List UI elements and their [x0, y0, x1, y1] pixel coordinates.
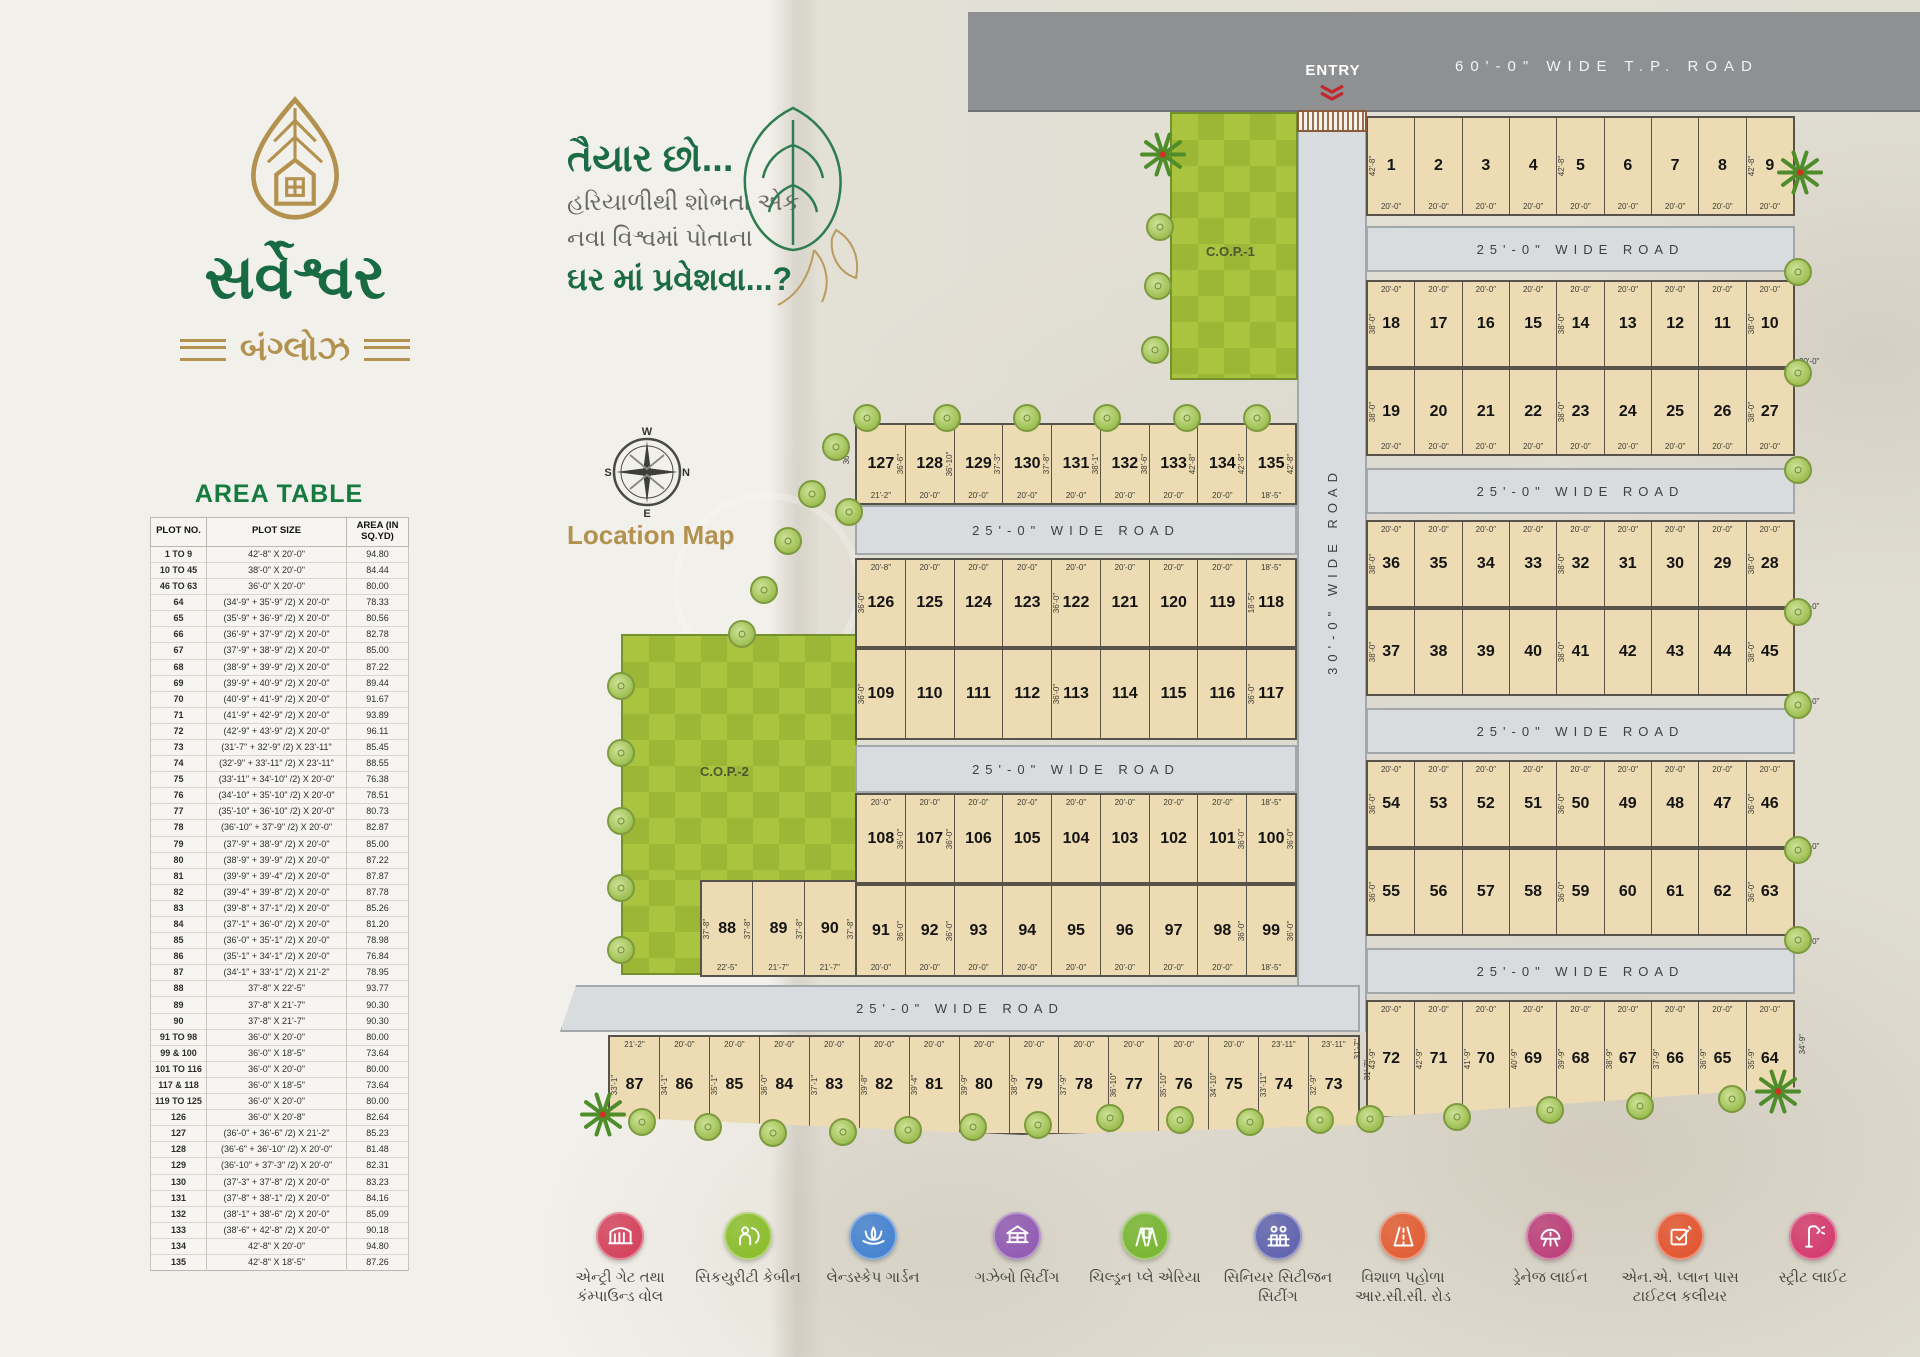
plot-no-cell: 132 [151, 1206, 207, 1222]
plot-90: 9021'-7"37'-8" [805, 882, 855, 975]
dimension-label: 20'-0" [1163, 798, 1183, 807]
tree-icon [1536, 1096, 1564, 1124]
plot-size-cell: 37'-8" X 21'-7" [207, 1013, 347, 1029]
plot-49: 4920'-0" [1605, 762, 1652, 846]
dimension-label: 20'-0" [1017, 798, 1037, 807]
plot-135: 13518'-5"42'-8" [1247, 425, 1295, 503]
plot-number: 6 [1623, 157, 1632, 175]
plot-number: 131 [1063, 455, 1090, 473]
tree-icon [1718, 1085, 1746, 1113]
tree-icon [1356, 1105, 1384, 1133]
plot-number: 22 [1524, 403, 1542, 421]
plot-size-cell: (37'-9" + 38'-9" /2) X 20'-0" [207, 836, 347, 852]
plot-number: 17 [1430, 315, 1448, 333]
legend-item: લેન્ડસ્કેપ ગાર્ડન [798, 1212, 948, 1288]
compass-n: N [682, 467, 690, 479]
table-row: 12636'-0" X 20'-8"82.64 [151, 1110, 409, 1126]
plot-block-row127: 12721'-2"36'-6"12820'-0"36'-10"12920'-0"… [855, 423, 1297, 505]
dimension-label: 34'-9" [1798, 1034, 1807, 1054]
dimension-label: 20'-0" [1570, 202, 1590, 211]
plot-no-cell: 101 TO 116 [151, 1061, 207, 1077]
plot-number: 29 [1714, 555, 1732, 573]
plot-15: 1520'-0" [1510, 282, 1557, 366]
tree-icon [1093, 404, 1121, 432]
tree-icon [829, 1118, 857, 1146]
plot-size-cell: 36'-0" X 20'-8" [207, 1110, 347, 1126]
plot-number: 50 [1572, 795, 1590, 813]
plot-number: 40 [1524, 643, 1542, 661]
plot-number: 23 [1572, 403, 1590, 421]
plot-no-cell: 66 [151, 627, 207, 643]
dimension-label: 20'-0" [1618, 285, 1638, 294]
dimension-label: 36'-10" [1109, 1073, 1118, 1098]
plot-number: 28 [1761, 555, 1779, 573]
plot-97: 9720'-0" [1150, 886, 1199, 975]
plot-20: 2020'-0" [1415, 370, 1462, 454]
cop2-label: C.O.P.-2 [700, 764, 749, 779]
dimension-label: 20'-0" [924, 1040, 944, 1049]
plot-number: 30 [1666, 555, 1684, 573]
dimension-label: 20'-0" [1428, 442, 1448, 451]
plot-size-cell: 36'-0" X 20'-0" [207, 579, 347, 595]
dimension-label: 36'-6" [896, 454, 905, 474]
tree-icon [1306, 1106, 1334, 1134]
plot-number: 123 [1014, 594, 1041, 612]
plot-no-cell: 75 [151, 772, 207, 788]
plot-18: 1820'-0"38'-0" [1368, 282, 1415, 366]
dimension-label: 20'-0" [968, 798, 988, 807]
area-cell: 73.64 [347, 1077, 409, 1093]
tree-icon [774, 527, 802, 555]
plot-size-cell: 42'-8" X 20'-0" [207, 1238, 347, 1254]
dimension-label: 20'-0" [724, 1040, 744, 1049]
road-25-wide: 25'-0" WIDE ROAD [855, 745, 1297, 793]
plot-size-cell: (35'-10" + 36'-10" /2) X 20'-0" [207, 804, 347, 820]
plot-number: 24 [1619, 403, 1637, 421]
plot-21: 2120'-0" [1463, 370, 1510, 454]
dimension-label: 20'-0" [1017, 563, 1037, 572]
security-cabin-icon [724, 1212, 772, 1260]
area-cell: 85.00 [347, 836, 409, 852]
plot-37: 3738'-0" [1368, 610, 1415, 694]
dimension-label: 20'-0" [1212, 798, 1232, 807]
plot-number: 75 [1225, 1076, 1243, 1094]
dimension-label: 20'-0" [1570, 765, 1590, 774]
plot-number: 69 [1524, 1050, 1542, 1068]
area-cell: 78.95 [347, 965, 409, 981]
bench-people-icon [1254, 1212, 1302, 1260]
plot-no-cell: 89 [151, 997, 207, 1013]
plot-no-cell: 117 & 118 [151, 1077, 207, 1093]
plot-107: 10720'-0"36'-0" [906, 795, 955, 882]
plot-number: 62 [1714, 883, 1732, 901]
location-map-label: Location Map [567, 520, 735, 551]
area-cell: 76.38 [347, 772, 409, 788]
plot-number: 76 [1175, 1076, 1193, 1094]
plot-number: 4 [1529, 157, 1538, 175]
area-cell: 89.44 [347, 675, 409, 691]
dimension-label: 20'-0" [1523, 202, 1543, 211]
dimension-label: 20'-0" [1428, 285, 1448, 294]
road-25-wide: 25'-0" WIDE ROAD [1366, 948, 1795, 994]
plot-44: 44 [1699, 610, 1746, 694]
plot-number: 38 [1430, 643, 1448, 661]
plot-no-cell: 130 [151, 1174, 207, 1190]
plot-no-cell: 131 [151, 1190, 207, 1206]
plot-number: 13 [1619, 315, 1637, 333]
plot-26: 2620'-0" [1699, 370, 1746, 454]
plot-72: 7220'-0"43'-9" [1368, 1002, 1415, 1116]
plot-no-cell: 68 [151, 659, 207, 675]
plot-number: 74 [1275, 1076, 1293, 1094]
plot-number: 115 [1161, 685, 1187, 703]
dimension-label: 38'-0" [1747, 402, 1756, 422]
dimension-label: 36'-0" [1237, 920, 1246, 940]
dimension-label: 20'-0" [874, 1040, 894, 1049]
plot-number: 60 [1619, 883, 1637, 901]
plot-number: 18 [1382, 315, 1400, 333]
table-row: 1 TO 942'-8" X 20'-0"94.80 [151, 546, 409, 562]
plot-66: 6620'-0"37'-9" [1652, 1002, 1699, 1116]
tree-icon [1784, 598, 1812, 626]
plot-size-cell: (33'-11" + 34'-10" /2) X 20'-0" [207, 772, 347, 788]
dimension-label: 20'-0" [968, 563, 988, 572]
plot-126: 12620'-8"36'-0" [857, 560, 906, 646]
table-row: 78(36'-10" + 37'-9" /2) X 20'-0"82.87 [151, 820, 409, 836]
plot-36: 3620'-0"38'-0" [1368, 522, 1415, 606]
plot-14: 1420'-0"38'-0" [1557, 282, 1604, 366]
plot-number: 121 [1111, 594, 1138, 612]
plot-number: 93 [970, 922, 988, 940]
plot-number: 33 [1524, 555, 1542, 573]
area-table-title: AREA TABLE [150, 480, 408, 509]
plot-number: 3 [1481, 157, 1490, 175]
dimension-label: 20'-0" [1760, 202, 1780, 211]
dimension-label: 38'-1" [1091, 454, 1100, 474]
dimension-label: 38'-0" [1557, 402, 1566, 422]
plot-number: 100 [1258, 830, 1285, 848]
dimension-label: 31'-7" [1363, 1060, 1372, 1080]
plot-number: 32 [1572, 555, 1590, 573]
gazebo-icon [993, 1212, 1041, 1260]
plot-block-rowG: 5536'-0"5657585936'-0"6061626336'-0" [1366, 848, 1795, 936]
table-row: 133(38'-6" + 42'-8" /2) X 20'-0"90.18 [151, 1222, 409, 1238]
plot-120: 12020'-0" [1150, 560, 1199, 646]
dimension-label: 37'-9" [1652, 1049, 1661, 1069]
plot-104: 10420'-0" [1052, 795, 1101, 882]
dimension-label: 36'-10" [945, 452, 954, 477]
plot-39: 39 [1463, 610, 1510, 694]
plot-no-cell: 69 [151, 675, 207, 691]
plot-number: 63 [1761, 883, 1779, 901]
table-row: 83(39'-8" + 37'-1" /2) X 20'-0"85.26 [151, 900, 409, 916]
dimension-label: 20'-0" [1665, 525, 1685, 534]
plot-number: 105 [1014, 830, 1041, 848]
legend-label: એન.એ. પ્લાન પાસ ટાઈટલ કલીયર [1605, 1269, 1755, 1307]
plot-size-cell: (37'-9" + 38'-9" /2) X 20'-0" [207, 643, 347, 659]
dimension-label: 20'-0" [1712, 765, 1732, 774]
dimension-label: 20'-0" [1381, 1005, 1401, 1014]
dimension-label: 37'-8" [846, 918, 855, 938]
plot-74: 7423'-11"33'-11" [1259, 1037, 1309, 1133]
palm-tree-icon [579, 1091, 627, 1144]
plot-25: 2520'-0" [1652, 370, 1699, 454]
plot-43: 43 [1652, 610, 1699, 694]
dimension-label: 20'-0" [1476, 442, 1496, 451]
table-row: 129(36'-10" + 37'-3" /2) X 20'-0"82.31 [151, 1158, 409, 1174]
plot-number: 72 [1382, 1050, 1400, 1068]
tree-icon [853, 404, 881, 432]
dimension-label: 18'-5" [1261, 563, 1281, 572]
plot-no-cell: 77 [151, 804, 207, 820]
plot-size-cell: 36'-0" X 18'-5" [207, 1045, 347, 1061]
plot-63: 6336'-0" [1747, 850, 1793, 934]
plot-61: 61 [1652, 850, 1699, 934]
dimension-label: 20'-0" [1163, 963, 1183, 972]
table-row: 128(36'-6" + 36'-10" /2) X 20'-0"81.48 [151, 1142, 409, 1158]
plot-106: 10620'-0" [955, 795, 1004, 882]
plot-no-cell: 83 [151, 900, 207, 916]
plot-22: 2220'-0" [1510, 370, 1557, 454]
plot-number: 59 [1572, 883, 1590, 901]
area-cell: 80.56 [347, 611, 409, 627]
plot-number: 103 [1111, 830, 1138, 848]
area-cell: 78.33 [347, 595, 409, 611]
plot-size-cell: (38'-9" + 39'-9" /2) X 20'-0" [207, 852, 347, 868]
plot-number: 94 [1018, 922, 1036, 940]
dimension-label: 20'-0" [1760, 285, 1780, 294]
tree-icon [933, 404, 961, 432]
plot-size-cell: (34'-10" + 35'-10" /2) X 20'-0" [207, 788, 347, 804]
plot-number: 12 [1666, 315, 1684, 333]
dimension-label: 39'-4" [910, 1075, 919, 1095]
area-cell: 90.18 [347, 1222, 409, 1238]
plot-block-row126: 12620'-8"36'-0"12520'-0"12420'-0"12320'-… [855, 558, 1297, 648]
plot-no-cell: 76 [151, 788, 207, 804]
plot-34: 3420'-0" [1463, 522, 1510, 606]
table-header-2: AREA (IN SQ.YD) [347, 518, 409, 547]
entry-label: ENTRY [1297, 62, 1369, 79]
table-row: 9037'-8" X 21'-7"90.30 [151, 1013, 409, 1029]
dimension-label: 20'-0" [1124, 1040, 1144, 1049]
dimension-label: 21'-7" [820, 963, 840, 972]
plot-116: 116 [1198, 650, 1247, 738]
plot-93: 9320'-0" [955, 886, 1004, 975]
plot-102: 10220'-0" [1150, 795, 1199, 882]
dimension-label: 33'-11" [1259, 1073, 1268, 1097]
plot-size-cell: 42'-8" X 18'-5" [207, 1254, 347, 1270]
plot-17: 1720'-0" [1415, 282, 1462, 366]
dimension-label: 20'-0" [1381, 442, 1401, 451]
dimension-label: 36'-0" [1368, 794, 1377, 814]
plot-number: 61 [1666, 883, 1684, 901]
area-cell: 78.98 [347, 933, 409, 949]
plot-8: 820'-0" [1699, 118, 1746, 214]
plot-30: 3020'-0" [1652, 522, 1699, 606]
area-cell: 82.87 [347, 820, 409, 836]
plot-no-cell: 134 [151, 1238, 207, 1254]
plot-number: 45 [1761, 643, 1779, 661]
plot-1: 120'-0"42'-8" [1368, 118, 1415, 214]
plot-24: 2420'-0" [1605, 370, 1652, 454]
area-cell: 87.26 [347, 1254, 409, 1270]
plot-number: 133 [1160, 455, 1187, 473]
plot-number: 101 [1209, 830, 1236, 848]
plot-number: 86 [676, 1076, 694, 1094]
table-row: 75(33'-11" + 34'-10" /2) X 20'-0"76.38 [151, 772, 409, 788]
dimension-label: 20'-0" [968, 963, 988, 972]
plot-number: 51 [1524, 795, 1542, 813]
tree-icon [1173, 404, 1201, 432]
dimension-label: 40'-9" [1510, 1049, 1519, 1069]
plot-number: 68 [1572, 1050, 1590, 1068]
plot-96: 9620'-0" [1101, 886, 1150, 975]
plot-112: 112 [1003, 650, 1052, 738]
table-row: 79(37'-9" + 38'-9" /2) X 20'-0"85.00 [151, 836, 409, 852]
plot-no-cell: 74 [151, 756, 207, 772]
plot-122: 12220'-0"36'-0" [1052, 560, 1101, 646]
plot-101: 10120'-0"36'-0" [1198, 795, 1247, 882]
area-cell: 94.80 [347, 1238, 409, 1254]
plot-119: 11920'-0" [1198, 560, 1247, 646]
table-row: 131(37'-8" + 38'-1" /2) X 20'-0"84.16 [151, 1190, 409, 1206]
plot-number: 114 [1112, 685, 1138, 703]
plot-number: 127 [868, 455, 895, 473]
dimension-label: 36'-0" [857, 593, 866, 613]
plot-70: 7020'-0"41'-9" [1463, 1002, 1510, 1116]
plot-block-rowB: 1820'-0"38'-0"1720'-0"1620'-0"1520'-0"14… [1366, 280, 1795, 368]
dimension-label: 20'-0" [1618, 202, 1638, 211]
compass-s: S [604, 467, 611, 479]
plot-size-cell: (36'-6" + 36'-10" /2) X 20'-0" [207, 1142, 347, 1158]
dimension-label: 38'-9" [1605, 1049, 1614, 1069]
dimension-label: 37'-8" [795, 918, 804, 938]
area-cell: 82.31 [347, 1158, 409, 1174]
plot-no-cell: 1 TO 9 [151, 546, 207, 562]
brand-block: સર્વેશ્વર બંગ્લોઝ [120, 95, 470, 369]
dimension-label: 20'-0" [1428, 1005, 1448, 1014]
plot-no-cell: 82 [151, 884, 207, 900]
dimension-label: 20'-0" [1618, 1005, 1638, 1014]
area-cell: 84.44 [347, 562, 409, 578]
plot-number: 54 [1382, 795, 1400, 813]
plot-48: 4820'-0" [1652, 762, 1699, 846]
plot-no-cell: 64 [151, 595, 207, 611]
plot-size-cell: 38'-0" X 20'-0" [207, 562, 347, 578]
table-row: 13542'-8" X 18'-5"87.26 [151, 1254, 409, 1270]
plot-number: 88 [718, 920, 736, 938]
dimension-label: 38'-0" [1368, 402, 1377, 422]
plot-125: 12520'-0" [906, 560, 955, 646]
dimension-label: 36'-0" [1237, 828, 1246, 848]
dimension-label: 20'-0" [1066, 491, 1086, 500]
plot-size-cell: (31'-7" + 32'-9" /2) X 23'-11" [207, 739, 347, 755]
plot-no-cell: 10 TO 45 [151, 562, 207, 578]
plot-size-cell: (39'-4" + 39'-8" /2) X 20'-0" [207, 884, 347, 900]
area-cell: 78.51 [347, 788, 409, 804]
plot-number: 27 [1761, 403, 1779, 421]
plot-number: 124 [965, 594, 992, 612]
plot-number: 81 [925, 1076, 943, 1094]
dimension-label: 20'-0" [1570, 285, 1590, 294]
plot-114: 114 [1101, 650, 1150, 738]
plot-no-cell: 79 [151, 836, 207, 852]
area-cell: 80.00 [347, 579, 409, 595]
plot-number: 73 [1325, 1076, 1343, 1094]
plot-size-cell: (37'-8" + 38'-1" /2) X 20'-0" [207, 1190, 347, 1206]
brand-subtitle-row: બંગ્લોઝ [120, 330, 470, 369]
dimension-label: 20'-0" [1115, 963, 1135, 972]
dimension-label: 38'-0" [1747, 314, 1756, 334]
tree-icon [1166, 1106, 1194, 1134]
compass-icon: W S N E [600, 425, 694, 519]
plot-10: 1020'-0"38'-0" [1747, 282, 1793, 366]
plot-number: 92 [921, 922, 939, 940]
area-cell: 87.22 [347, 659, 409, 675]
dimension-label: 20'-0" [1163, 491, 1183, 500]
plot-number: 56 [1430, 883, 1448, 901]
plot-129: 12920'-0"37'-3" [955, 425, 1004, 503]
plot-number: 10 [1761, 315, 1779, 333]
dimension-label: 36'-0" [760, 1075, 769, 1095]
plot-number: 108 [868, 830, 895, 848]
area-cell: 80.00 [347, 1029, 409, 1045]
plot-no-cell: 80 [151, 852, 207, 868]
plot-no-cell: 85 [151, 933, 207, 949]
plot-number: 67 [1619, 1050, 1637, 1068]
dimension-label: 20'-0" [1665, 765, 1685, 774]
plot-number: 113 [1063, 685, 1089, 703]
dimension-label: 36'-0" [1286, 920, 1295, 940]
dimension-label: 20'-0" [1066, 798, 1086, 807]
dimension-label: 20'-0" [1665, 202, 1685, 211]
plot-number: 7 [1671, 157, 1680, 175]
plot-number: 57 [1477, 883, 1495, 901]
lotus-icon [849, 1212, 897, 1260]
dimension-label: 36'-0" [896, 920, 905, 940]
area-cell: 90.30 [347, 997, 409, 1013]
plot-11: 1120'-0" [1699, 282, 1746, 366]
legend-item: વિશાળ પહોળા આર.સી.સી. રોડ [1328, 1212, 1478, 1307]
dimension-label: 37'-9" [1059, 1075, 1068, 1095]
plot-7: 720'-0" [1652, 118, 1699, 214]
swing-icon [1121, 1212, 1169, 1260]
plot-58: 58 [1510, 850, 1557, 934]
plot-size-cell: (40'-9" + 41'-9" /2) X 20'-0" [207, 691, 347, 707]
dimension-label: 20'-0" [1476, 285, 1496, 294]
dimension-label: 38'-0" [1368, 554, 1377, 574]
dimension-label: 23'-11" [1321, 1040, 1345, 1049]
plot-size-cell: 37'-8" X 22'-5" [207, 981, 347, 997]
dimension-label: 37'-8" [1042, 454, 1051, 474]
legend-item: ચિલ્ડ્રન પ્લે એરિયા [1070, 1212, 1220, 1288]
area-table: AREA TABLE PLOT NO.PLOT SIZEAREA (IN SQ.… [150, 480, 408, 1271]
area-cell: 87.87 [347, 868, 409, 884]
dimension-label: 20'-0" [1712, 442, 1732, 451]
dimension-label: 20'-0" [1523, 765, 1543, 774]
dimension-label: 20'-0" [1428, 525, 1448, 534]
table-row: 67(37'-9" + 38'-9" /2) X 20'-0"85.00 [151, 643, 409, 659]
plot-27: 2720'-0"38'-0" [1747, 370, 1793, 454]
tree-icon [1626, 1092, 1654, 1120]
plot-number: 16 [1477, 315, 1495, 333]
table-row: 132(38'-1" + 38'-6" /2) X 20'-0"85.09 [151, 1206, 409, 1222]
dimension-label: 20'-0" [1665, 1005, 1685, 1014]
plot-89: 8921'-7"37'-8" [753, 882, 804, 975]
plot-41: 4138'-0" [1557, 610, 1604, 694]
plot-number: 46 [1761, 795, 1779, 813]
tp-road [968, 12, 1920, 112]
